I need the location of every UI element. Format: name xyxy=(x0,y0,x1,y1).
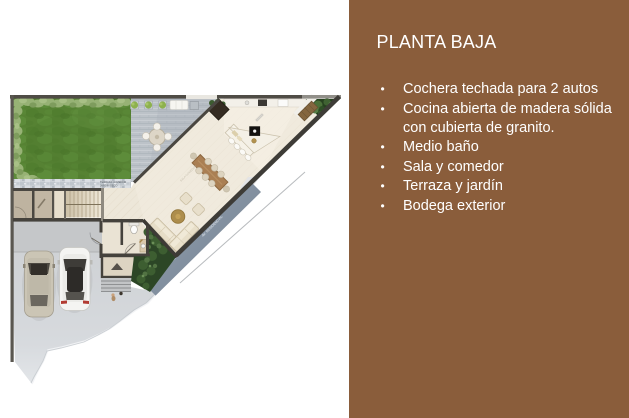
svg-text:TERRAZA COMEDOR: TERRAZA COMEDOR xyxy=(100,180,126,184)
svg-text:JARDIN SECO: JARDIN SECO xyxy=(100,184,117,188)
